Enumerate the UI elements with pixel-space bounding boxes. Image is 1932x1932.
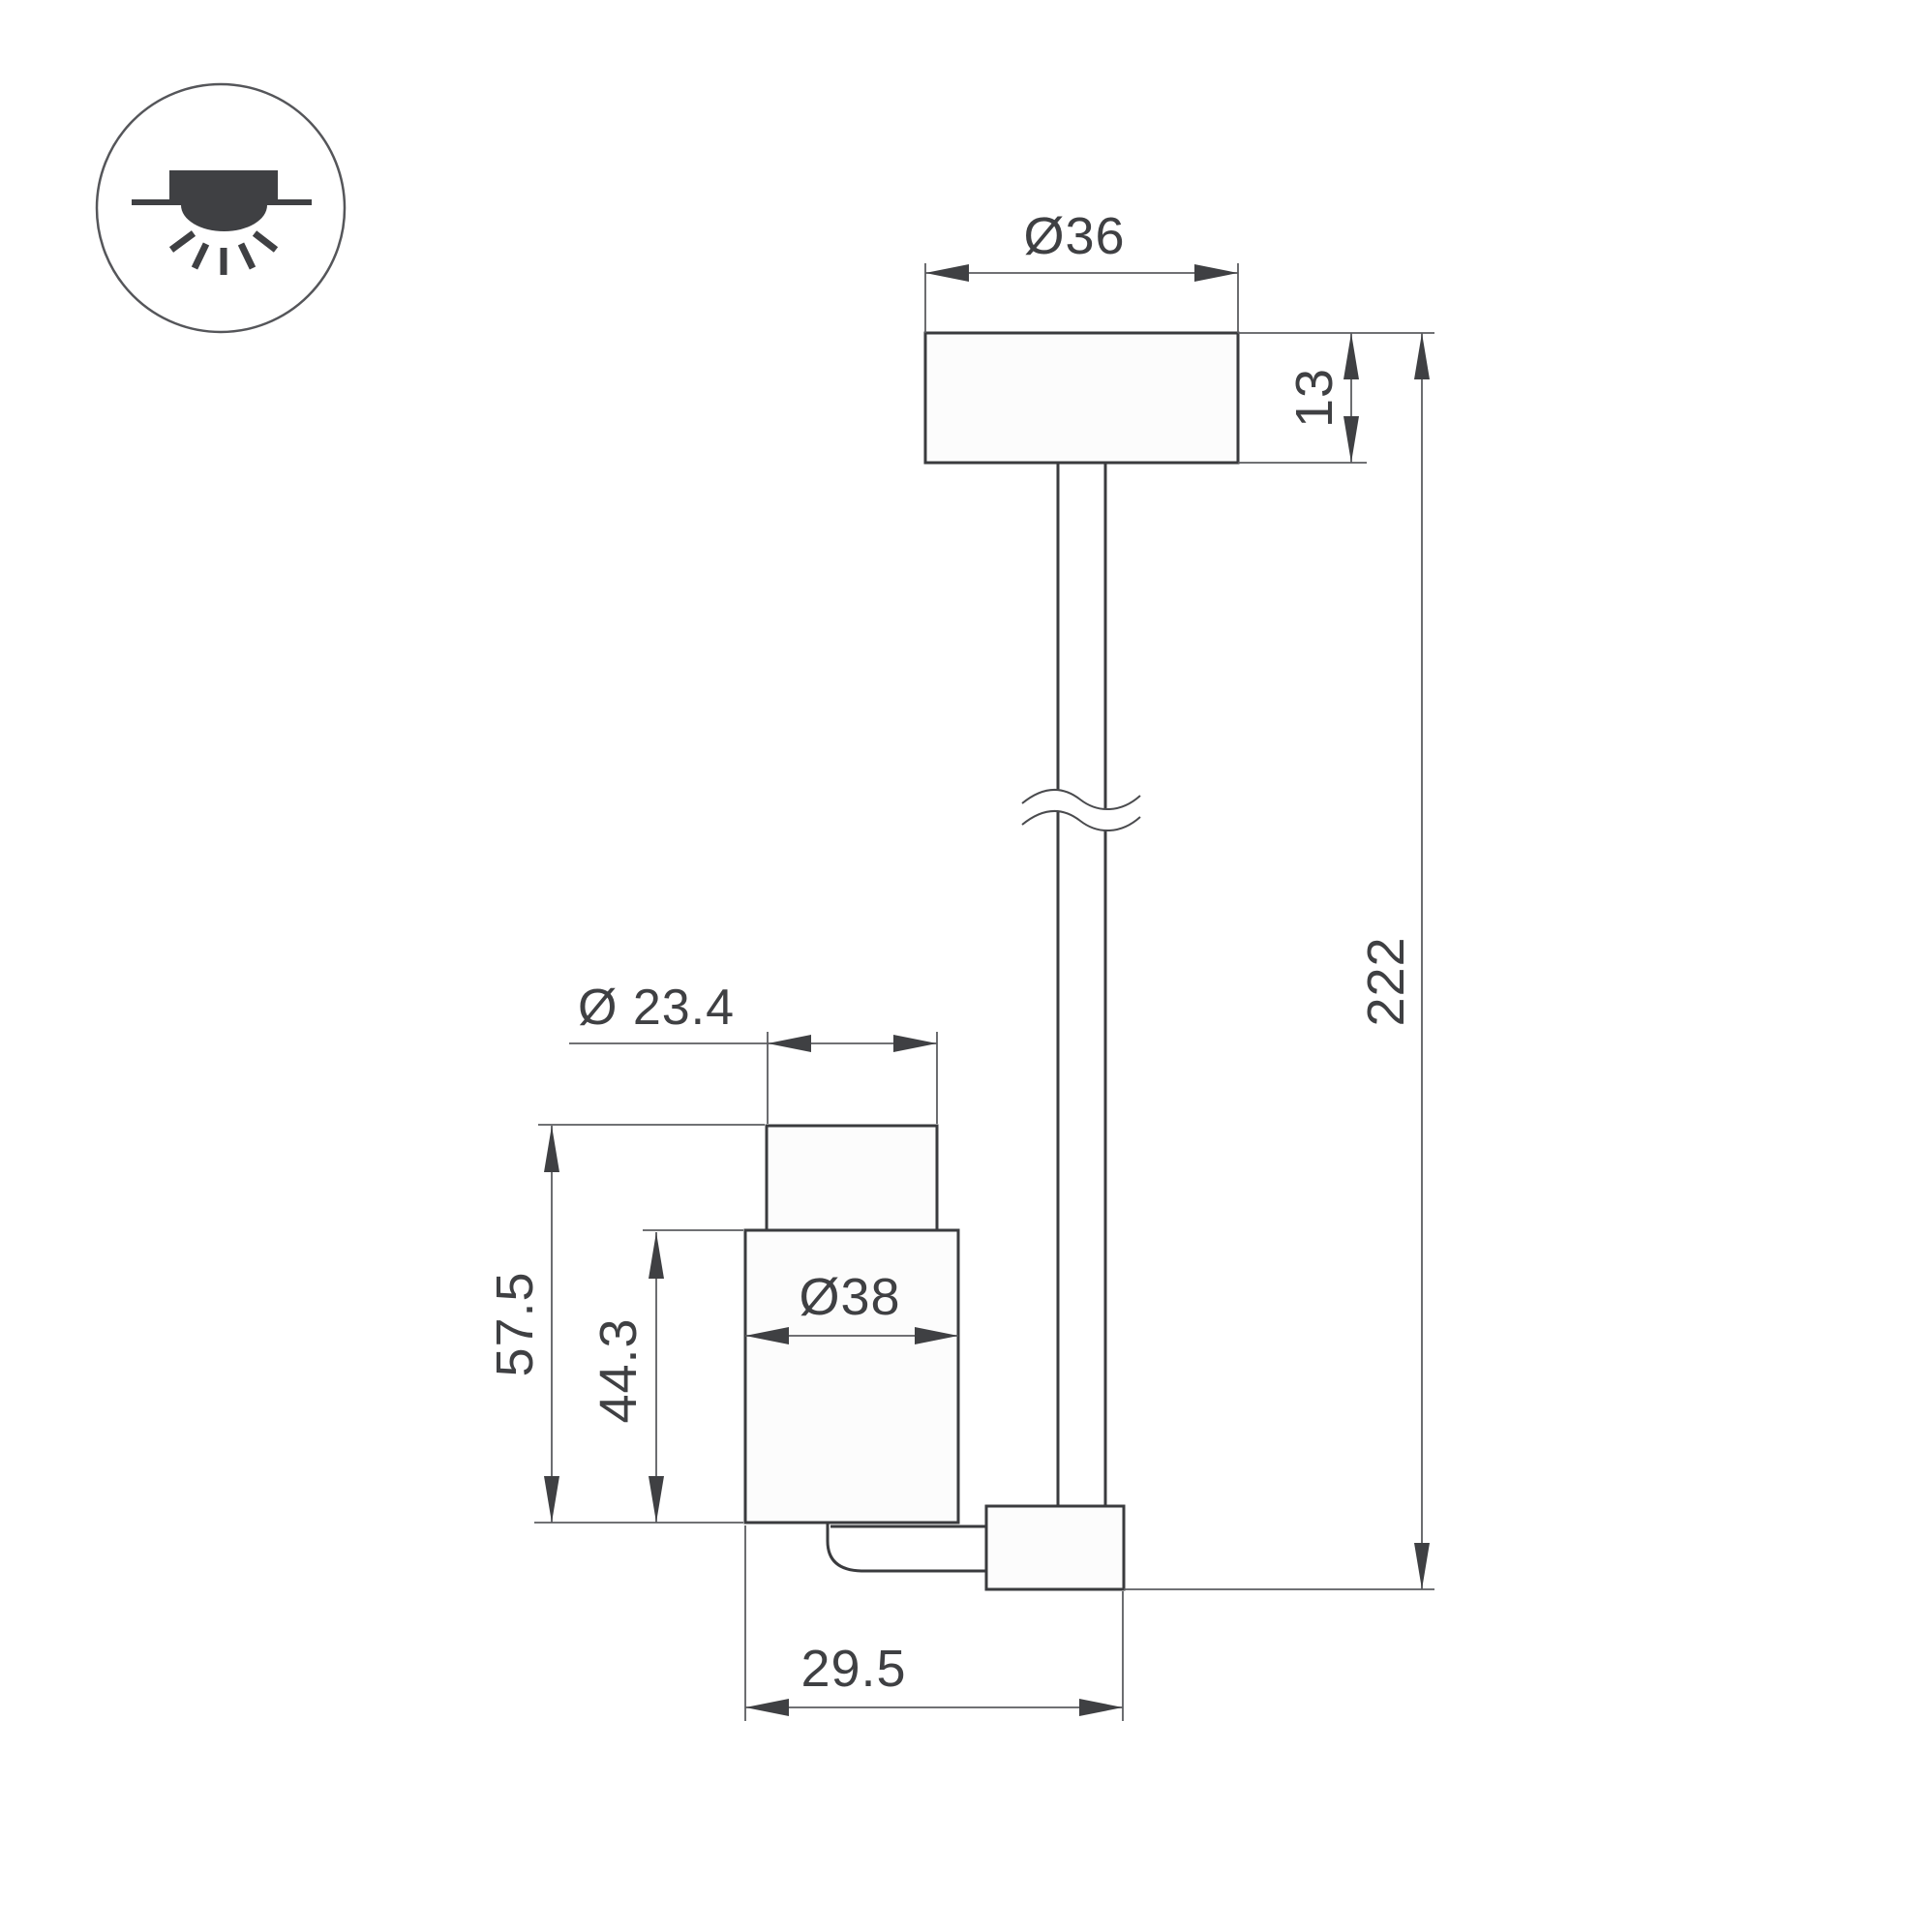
elbow-arm — [828, 1523, 986, 1571]
dim-label-body-height: 44.3 — [589, 1317, 648, 1423]
arrowhead-left — [925, 264, 969, 282]
arrowhead-right — [1079, 1699, 1123, 1716]
arrowhead-up — [649, 1232, 664, 1279]
dim-canopy-diameter: Ø36 — [925, 207, 1238, 333]
dim-head-top-diameter: Ø 23.4 — [569, 980, 937, 1124]
arrowhead-right — [1194, 264, 1238, 282]
recessed-downlight-mount-icon — [97, 84, 345, 332]
dim-canopy-height: 13 — [1238, 333, 1434, 463]
arrowhead-left — [745, 1699, 789, 1716]
technical-drawing-canvas: Ø36 13 222 Ø 23.4 57.5 — [0, 0, 1932, 1932]
arrowhead-down — [649, 1476, 664, 1523]
dim-label-head-top-diameter: Ø 23.4 — [578, 980, 735, 1036]
dim-label-head-height: 57.5 — [486, 1271, 544, 1376]
arrowhead-right — [893, 1035, 937, 1052]
arrowhead-up — [544, 1126, 559, 1172]
rod-connector — [986, 1506, 1124, 1589]
dim-body-height: 44.3 — [589, 1230, 743, 1523]
dim-label-overall-height: 222 — [1357, 936, 1415, 1026]
fixture-housing-glyph — [169, 170, 278, 202]
arrowhead-down — [544, 1476, 559, 1523]
dim-label-arm-offset: 29.5 — [800, 1640, 906, 1698]
break-symbol — [1022, 790, 1140, 830]
dim-label-canopy-height: 13 — [1285, 368, 1343, 428]
arrowhead-left — [768, 1035, 811, 1052]
ceiling-line-glyph — [132, 199, 312, 205]
arrowhead-up — [1343, 333, 1359, 379]
drawing-page: Ø36 13 222 Ø 23.4 57.5 — [0, 0, 1932, 1932]
dim-label-canopy-diameter: Ø36 — [1023, 207, 1125, 265]
dim-label-body-diameter: Ø38 — [799, 1268, 900, 1326]
suspension-rod — [1058, 463, 1105, 1506]
fixture-outline — [745, 333, 1238, 1589]
arrowhead-down — [1343, 416, 1359, 463]
break-mask — [1022, 790, 1140, 830]
ceiling-canopy — [925, 333, 1238, 463]
arrowhead-up — [1414, 333, 1430, 379]
dim-overall-height: 222 — [1124, 333, 1434, 1589]
arrowhead-down — [1414, 1543, 1430, 1589]
spot-head-neck — [767, 1126, 937, 1230]
